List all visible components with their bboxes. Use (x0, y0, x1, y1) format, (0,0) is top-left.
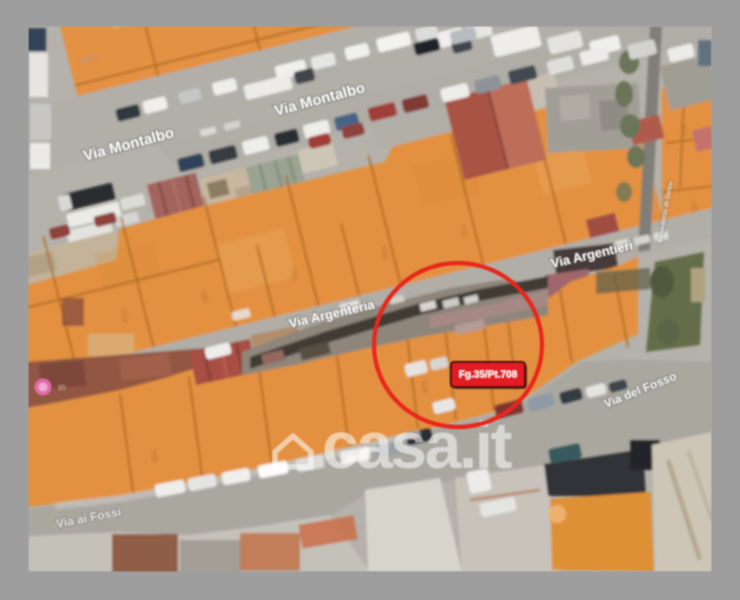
svg-text:casa.it: casa.it (322, 408, 512, 482)
svg-text:95: 95 (58, 385, 66, 392)
svg-text:Fg.35/Pt.708: Fg.35/Pt.708 (459, 370, 518, 381)
